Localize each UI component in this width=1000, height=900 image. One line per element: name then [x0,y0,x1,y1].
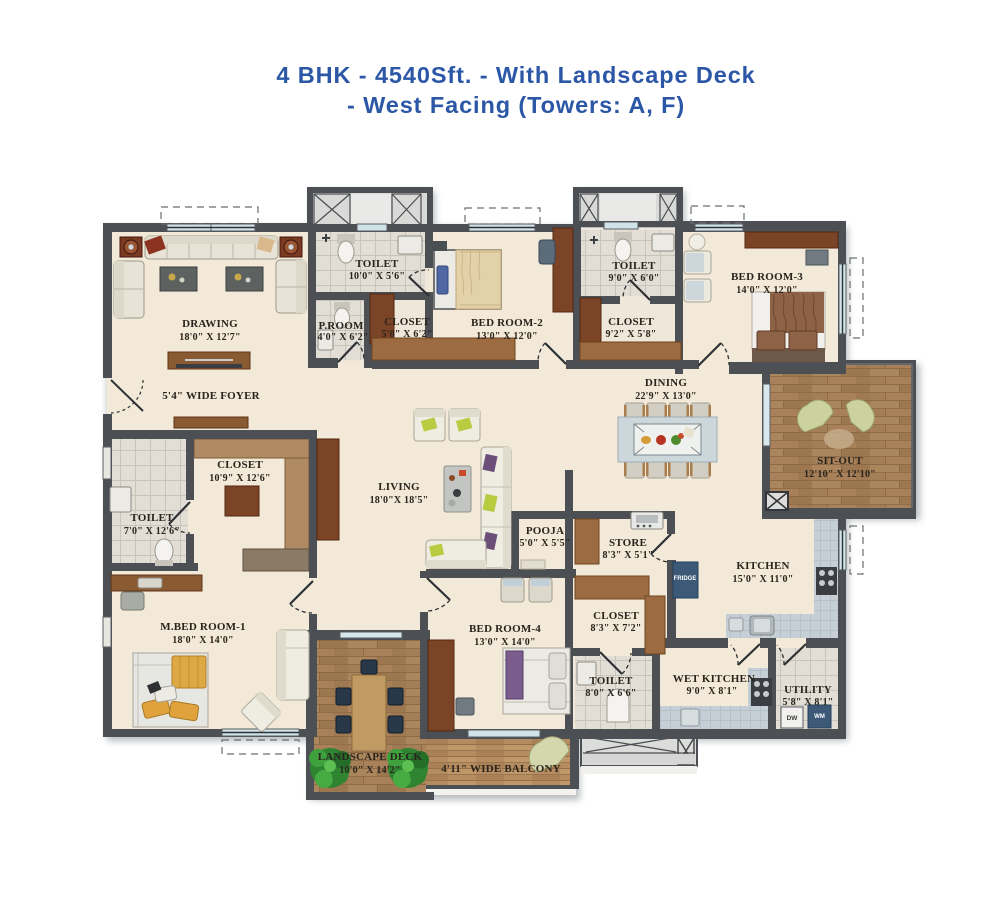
svg-text:5'4" WIDE FOYER: 5'4" WIDE FOYER [162,390,260,402]
svg-text:WM: WM [814,714,825,720]
svg-text:10'9" X 12'6": 10'9" X 12'6" [209,473,270,484]
svg-text:8'0" X 6'6": 8'0" X 6'6" [585,688,636,699]
svg-text:18'0" X 12'7": 18'0" X 12'7" [179,332,240,343]
svg-text:POOJA: POOJA [526,525,564,537]
svg-text:P.ROOM: P.ROOM [318,320,364,332]
svg-text:7'0" X 12'6": 7'0" X 12'6" [124,526,180,537]
svg-text:TOILET: TOILET [130,512,174,524]
svg-text:5'0" X 5'5": 5'0" X 5'5" [519,538,570,549]
svg-text:CLOSET: CLOSET [384,316,430,328]
svg-text:13'0" X 14'0": 13'0" X 14'0" [474,637,535,648]
svg-text:CLOSET: CLOSET [608,316,654,328]
svg-text:BED ROOM-2: BED ROOM-2 [471,317,543,329]
svg-text:DINING: DINING [645,377,687,389]
svg-text:STORE: STORE [609,537,647,549]
svg-text:LANDSCAPE DECK: LANDSCAPE DECK [318,751,423,763]
svg-text:9'0" X 8'1": 9'0" X 8'1" [686,686,737,697]
svg-text:M.BED ROOM-1: M.BED ROOM-1 [160,621,246,633]
svg-text:TOILET: TOILET [589,675,633,687]
svg-text:BED ROOM-3: BED ROOM-3 [731,271,803,283]
svg-text:18'0" X 14'0": 18'0" X 14'0" [172,635,233,646]
svg-text:LIVING: LIVING [378,481,420,493]
svg-text:4'11" WIDE BALCONY: 4'11" WIDE BALCONY [441,763,561,775]
svg-text:TOILET: TOILET [612,260,656,272]
svg-text:12'10" X 12'10": 12'10" X 12'10" [804,469,876,480]
svg-text:SIT-OUT: SIT-OUT [817,455,863,467]
svg-text:FRIDGE: FRIDGE [674,576,697,582]
svg-text:CLOSET: CLOSET [593,610,639,622]
svg-text:5'8" X 8'1": 5'8" X 8'1" [782,697,833,708]
svg-text:15'0" X 11'0": 15'0" X 11'0" [733,574,794,585]
svg-text:DRAWING: DRAWING [182,318,238,330]
svg-text:8'3" X 5'1": 8'3" X 5'1" [602,550,653,561]
svg-text:UTILITY: UTILITY [784,684,832,696]
svg-text:13'0" X 12'0": 13'0" X 12'0" [476,331,537,342]
svg-text:8'3" X 7'2": 8'3" X 7'2" [590,623,641,634]
svg-text:CLOSET: CLOSET [217,459,263,471]
svg-text:9'2" X 5'8": 9'2" X 5'8" [605,329,656,340]
svg-text:- West Facing (Towers: A, F): - West Facing (Towers: A, F) [347,92,685,118]
svg-text:14'0" X 12'0": 14'0" X 12'0" [736,285,797,296]
svg-text:BED ROOM-4: BED ROOM-4 [469,623,541,635]
svg-text:KITCHEN: KITCHEN [736,560,789,572]
svg-text:DW: DW [787,715,799,722]
svg-text:10'0" X 5'6": 10'0" X 5'6" [349,271,405,282]
svg-text:10'0" X 14'2": 10'0" X 14'2" [339,765,400,776]
svg-text:5'0" X 6'2": 5'0" X 6'2" [381,329,432,340]
svg-text:4'0" X 6'2": 4'0" X 6'2" [317,332,368,343]
svg-text:WET KITCHEN: WET KITCHEN [673,673,755,685]
svg-text:TOILET: TOILET [355,258,399,270]
svg-text:9'0" X 6'0": 9'0" X 6'0" [608,273,659,284]
svg-text:22'9" X 13'0": 22'9" X 13'0" [635,391,696,402]
svg-text:18'0"X 18'5": 18'0"X 18'5" [370,495,429,506]
svg-text:4 BHK - 4540Sft. - With Landsc: 4 BHK - 4540Sft. - With Landscape Deck [276,62,755,88]
